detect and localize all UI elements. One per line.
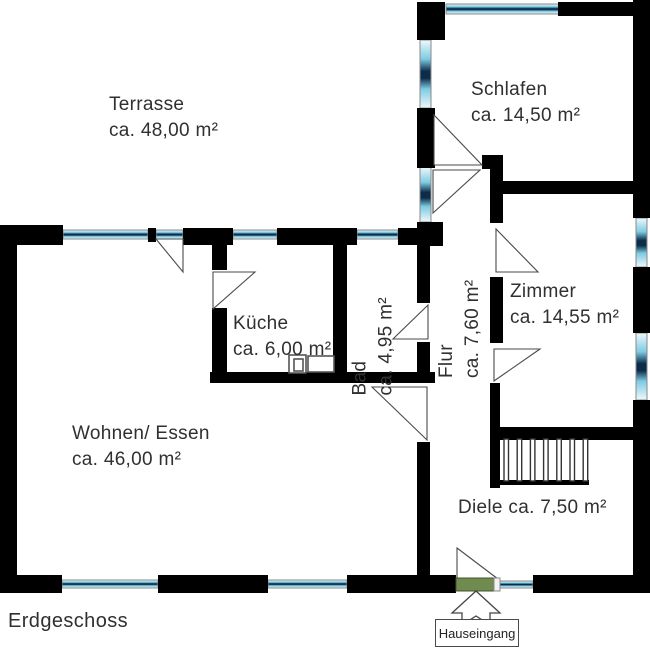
wall [277, 228, 357, 245]
room-label-flur: Flur ca. 7,60 m² [434, 268, 486, 378]
room-label-schlafen: Schlafen ca. 14,50 m² [471, 77, 580, 129]
room-label-kueche: Küche ca. 6,00 m² [233, 311, 331, 363]
room-area-terrasse: ca. 48,00 m² [109, 118, 218, 144]
entrance-door [456, 578, 494, 591]
wall [633, 267, 650, 333]
floorplan-page: Terrasse ca. 48,00 m² Schlafen ca. 14,50… [0, 0, 650, 649]
window [446, 4, 560, 14]
room-name-schlafen: Schlafen [471, 79, 547, 100]
window [63, 230, 148, 239]
entrance-label: Hauseingang [439, 626, 516, 641]
room-label-terrasse: Terrasse ca. 48,00 m² [109, 92, 218, 144]
door-swing [213, 272, 255, 309]
room-area-bad: ca. 4,95 m² [374, 281, 400, 396]
door-swing [457, 548, 498, 579]
wall [417, 2, 445, 40]
room-area-flur: ca. 7,60 m² [460, 268, 486, 378]
wall [533, 575, 650, 593]
room-area-wohnen: ca. 46,00 m² [72, 447, 210, 473]
room-area-diele: ca. 7,50 m² [508, 497, 606, 518]
wall [417, 108, 435, 168]
room-name-wohnen: Wohnen/ Essen [72, 423, 210, 444]
window [420, 167, 431, 222]
wall [417, 222, 443, 246]
wall [490, 427, 650, 440]
wall [558, 2, 636, 16]
wall [0, 225, 17, 593]
room-area-schlafen: ca. 14,50 m² [471, 103, 580, 129]
entrance-door-handle [494, 578, 500, 591]
room-name-terrasse: Terrasse [109, 94, 184, 115]
room-label-zimmer: Zimmer ca. 14,55 m² [510, 279, 619, 331]
wall [148, 228, 156, 242]
wall [183, 228, 233, 245]
room-name-flur: Flur [436, 344, 457, 378]
wall [398, 228, 420, 245]
room-name-bad: Bad [350, 361, 371, 396]
window [357, 230, 398, 239]
wall [502, 181, 650, 194]
wall [490, 168, 503, 223]
wall [210, 372, 435, 383]
wall [212, 243, 227, 270]
room-area-zimmer: ca. 14,55 m² [510, 305, 619, 331]
window [62, 580, 158, 588]
door-swing [496, 229, 538, 272]
wall [158, 575, 268, 593]
stair-tread [530, 439, 535, 481]
window [636, 218, 647, 267]
window [499, 581, 533, 588]
window [156, 230, 183, 239]
room-area-kueche: ca. 6,00 m² [233, 337, 331, 363]
stair-tread [544, 439, 549, 481]
stair-tread [583, 439, 588, 481]
window [268, 580, 347, 588]
room-label-diele: Diele ca. 7,50 m² [458, 495, 607, 521]
wall [482, 155, 503, 169]
room-name-kueche: Küche [233, 313, 288, 334]
wall [417, 245, 430, 303]
wall [333, 243, 347, 375]
room-label-wohnen: Wohnen/ Essen ca. 46,00 m² [72, 421, 210, 473]
window [636, 333, 647, 400]
entrance-label-box: Hauseingang [435, 619, 519, 647]
stair-tread [570, 439, 575, 481]
wall [0, 575, 62, 593]
window [233, 230, 277, 239]
door-swing [494, 349, 540, 381]
wall [212, 308, 227, 375]
wall [417, 442, 430, 583]
door-swing [433, 170, 480, 213]
stair-tread [517, 439, 522, 481]
wall [347, 575, 456, 593]
room-name-diele: Diele [458, 497, 503, 518]
window [420, 40, 431, 108]
room-name-zimmer: Zimmer [510, 281, 576, 302]
wall [490, 277, 503, 343]
room-label-bad: Bad ca. 4,95 m² [348, 281, 400, 396]
stair-tread [504, 439, 509, 481]
stair-tread [557, 439, 562, 481]
door-swing [156, 239, 183, 272]
floor-title: Erdgeschoss [8, 610, 128, 633]
